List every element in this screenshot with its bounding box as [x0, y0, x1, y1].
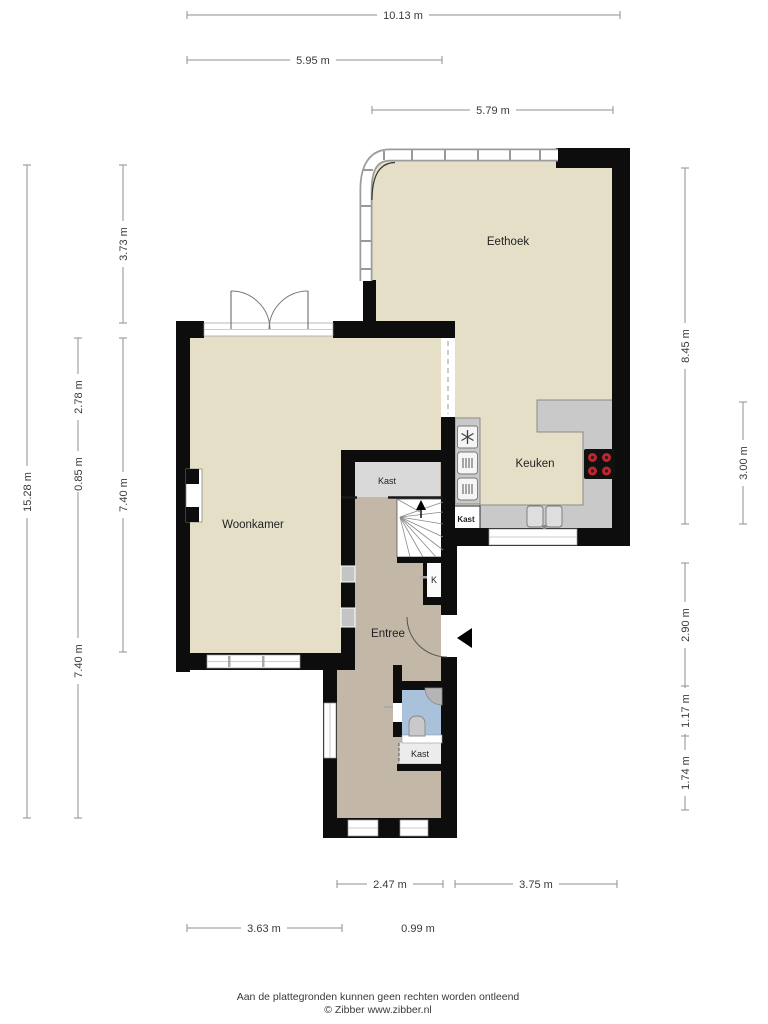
- dim-top-1: 5.95 m: [187, 53, 442, 67]
- svg-text:15.28 m: 15.28 m: [22, 472, 34, 512]
- dim-right-3: 1.17 m: [678, 686, 692, 736]
- dim-bottom-1: 3.75 m: [455, 877, 617, 891]
- floorplan-canvas: Eethoek Woonkamer Keuken Entree Kast Kas…: [0, 0, 768, 1024]
- room-label-entree: Entree: [371, 628, 405, 640]
- dim-left-1: 2.78 m: [71, 338, 85, 456]
- footer-disclaimer: Aan de plattegronden kunnen geen rechten…: [237, 991, 520, 1003]
- room-label-k-closet: K: [431, 575, 437, 585]
- dim-right-2: 2.90 m: [678, 563, 692, 686]
- svg-text:1.17 m: 1.17 m: [680, 694, 692, 728]
- room-label-kast-hal: Kast: [378, 476, 397, 486]
- dim-right-1: 3.00 m: [736, 402, 750, 524]
- svg-text:3.73 m: 3.73 m: [118, 227, 130, 261]
- svg-text:0.99 m: 0.99 m: [401, 923, 435, 935]
- svg-text:2.90 m: 2.90 m: [680, 608, 692, 642]
- svg-text:10.13 m: 10.13 m: [383, 10, 423, 22]
- svg-text:1.74 m: 1.74 m: [680, 756, 692, 790]
- footer-credit: © Zibber www.zibber.nl: [324, 1004, 432, 1016]
- entrance-arrow-icon: [457, 628, 472, 648]
- room-label-kast-keuken: Kast: [457, 515, 475, 524]
- room-label-kast-onder: Kast: [411, 749, 430, 759]
- svg-text:0.85 m: 0.85 m: [73, 457, 85, 491]
- dim-top-2: 5.79 m: [372, 103, 613, 117]
- dim-right-4: 1.74 m: [678, 736, 692, 810]
- room-label-woonkamer: Woonkamer: [222, 519, 284, 531]
- svg-text:3.75 m: 3.75 m: [519, 879, 553, 891]
- dim-left-2: 0.85 m: [71, 451, 85, 497]
- cooktop-icon: [584, 449, 615, 479]
- oven-icon: [458, 452, 478, 474]
- dim-left-4: 3.73 m: [116, 165, 130, 323]
- dim-left-5: 7.40 m: [116, 338, 130, 652]
- toilet-icon: [409, 716, 425, 736]
- dim-left-0: 15.28 m: [20, 165, 34, 818]
- svg-text:5.95 m: 5.95 m: [296, 55, 330, 67]
- dim-right-0: 8.45 m: [678, 168, 692, 524]
- svg-text:2.78 m: 2.78 m: [73, 380, 85, 414]
- svg-text:3.63 m: 3.63 m: [247, 923, 281, 935]
- ventilation-icon: [458, 426, 478, 448]
- svg-text:2.47 m: 2.47 m: [373, 879, 407, 891]
- svg-text:5.79 m: 5.79 m: [476, 105, 510, 117]
- dim-bottom-2: 3.63 m: [187, 921, 342, 935]
- dim-bottom-3: 0.99 m: [395, 921, 441, 935]
- room-label-eethoek: Eethoek: [487, 236, 529, 248]
- room-label-keuken: Keuken: [515, 458, 554, 470]
- chimney-niche: [186, 469, 202, 522]
- dim-top-0: 10.13 m: [187, 8, 620, 22]
- french-doors: [204, 291, 333, 336]
- svg-text:7.40 m: 7.40 m: [73, 644, 85, 678]
- dim-bottom-0: 2.47 m: [337, 877, 443, 891]
- svg-text:3.00 m: 3.00 m: [738, 446, 750, 480]
- dim-left-3: 7.40 m: [71, 492, 85, 818]
- svg-text:7.40 m: 7.40 m: [118, 478, 130, 512]
- oven-icon: [458, 478, 478, 500]
- svg-text:8.45 m: 8.45 m: [680, 329, 692, 363]
